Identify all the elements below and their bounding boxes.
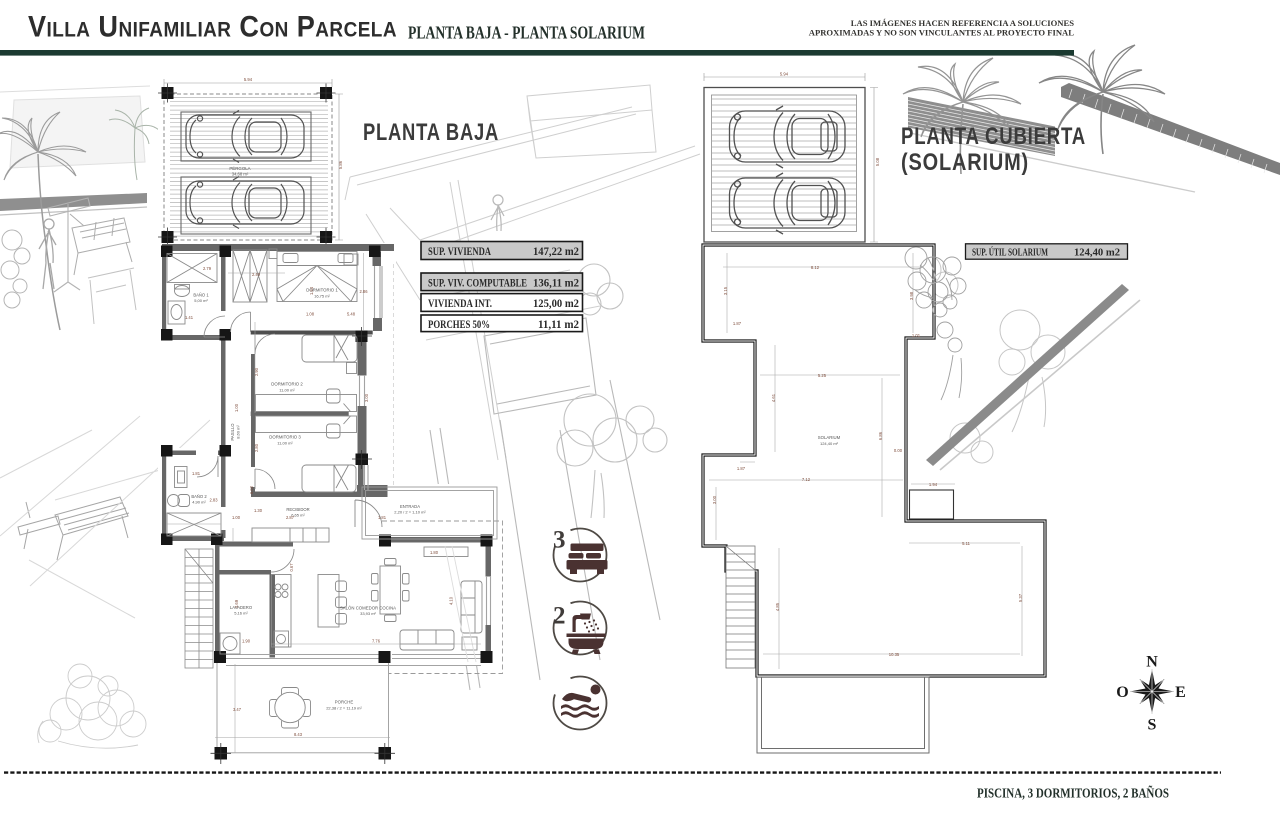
svg-text:136,11 m2: 136,11 m2 [533,278,579,290]
svg-text:1.30: 1.30 [254,508,263,513]
svg-text:1.00: 1.00 [232,515,241,520]
svg-text:SOLARIUM: SOLARIUM [818,435,841,440]
svg-text:2,20 / 2 = 1,10 m²: 2,20 / 2 = 1,10 m² [394,510,426,515]
svg-text:DORMITORIO 3: DORMITORIO 3 [269,435,301,440]
svg-text:PLANTA BAJA - PLANTA SOLARIUM: PLANTA BAJA - PLANTA SOLARIUM [408,23,645,43]
svg-text:147,22 m2: 147,22 m2 [533,246,579,258]
svg-text:1.87: 1.87 [733,321,742,326]
svg-text:1.00: 1.00 [234,403,239,412]
svg-text:ENTRADA: ENTRADA [400,504,420,509]
svg-text:3.47: 3.47 [233,707,242,712]
svg-text:0.00: 0.00 [894,448,903,453]
svg-text:0.67: 0.67 [289,563,294,572]
svg-text:N: N [1146,654,1158,671]
svg-text:PORCHES 50%: PORCHES 50% [428,319,490,331]
svg-text:1.81: 1.81 [192,471,201,476]
svg-text:5.86: 5.86 [338,160,343,169]
svg-text:1.87: 1.87 [737,466,746,471]
svg-text:11,11 m2: 11,11 m2 [538,319,579,331]
svg-text:2.79: 2.79 [203,266,212,271]
svg-text:3.00: 3.00 [712,495,717,504]
svg-text:6.86: 6.86 [878,431,883,440]
svg-text:8.12: 8.12 [811,265,820,270]
svg-text:7.12: 7.12 [802,477,811,482]
svg-text:5.94: 5.94 [244,77,253,82]
svg-text:125,00 m2: 125,00 m2 [533,298,579,310]
svg-text:4.85: 4.85 [775,602,780,611]
svg-text:1.80: 1.80 [430,550,439,555]
svg-text:PASILLO: PASILLO [230,423,235,441]
svg-text:33,93 m²: 33,93 m² [360,611,376,616]
svg-text:7.76: 7.76 [372,639,381,644]
svg-text:5,00 m²: 5,00 m² [194,298,208,303]
svg-text:APROXIMADAS Y NO SON VINCULANT: APROXIMADAS Y NO SON VINCULANTES AL PROY… [809,28,1075,38]
svg-text:PLANTA BAJA: PLANTA BAJA [363,119,499,146]
svg-text:BAÑO 2: BAÑO 2 [191,494,207,499]
svg-text:2: 2 [553,603,566,630]
svg-text:SUP. VIV. COMPUTABLE: SUP. VIV. COMPUTABLE [428,278,527,290]
svg-text:5.48: 5.48 [347,312,356,317]
svg-text:(SOLARIUM): (SOLARIUM) [901,149,1029,176]
svg-text:3: 3 [553,527,566,554]
svg-text:6.02: 6.02 [249,485,254,494]
svg-text:S: S [1148,717,1157,734]
svg-text:2.83: 2.83 [210,498,219,503]
svg-text:34,68 m²: 34,68 m² [232,172,249,177]
svg-text:2.90: 2.90 [254,367,259,376]
svg-text:3.98: 3.98 [909,291,914,300]
svg-text:Villa Unifamiliar Con Parcela: Villa Unifamiliar Con Parcela [28,11,397,44]
svg-text:5,16 m²: 5,16 m² [234,611,248,616]
svg-text:RECIBIDOR: RECIBIDOR [286,507,309,512]
svg-text:PISCINA, 3 DORMITORIOS, 2 BAÑO: PISCINA, 3 DORMITORIOS, 2 BAÑOS [977,784,1169,802]
svg-text:PLANTA CUBIERTA: PLANTA CUBIERTA [901,123,1086,150]
svg-text:5.08: 5.08 [875,157,880,166]
svg-text:LAS IMÁGENES HACEN REFERENCIA: LAS IMÁGENES HACEN REFERENCIA A SOLUCION… [851,18,1074,28]
svg-text:SUP. ÚTIL SOLARIUM: SUP. ÚTIL SOLARIUM [972,247,1048,259]
svg-text:VIVIENDA INT.: VIVIENDA INT. [428,298,492,310]
svg-text:1.94: 1.94 [929,482,938,487]
svg-text:1.84: 1.84 [309,286,314,295]
svg-text:2.69: 2.69 [234,599,239,608]
svg-text:4.10: 4.10 [449,596,454,605]
svg-text:1.41: 1.41 [185,315,194,320]
svg-text:1.08: 1.08 [306,312,315,317]
svg-text:16,75 m²: 16,75 m² [314,294,330,299]
svg-text:2.86: 2.86 [360,289,369,294]
svg-text:22,38 / 2 = 11,19 m²: 22,38 / 2 = 11,19 m² [326,706,362,711]
svg-text:PÉRGOLA: PÉRGOLA [229,166,250,171]
svg-text:5.37: 5.37 [1018,593,1023,602]
svg-text:DORMITORIO 2: DORMITORIO 2 [271,382,303,387]
svg-text:BAÑO 1: BAÑO 1 [193,293,209,298]
svg-text:SALÓN COMEDOR COCINA: SALÓN COMEDOR COCINA [340,606,396,611]
svg-text:5.25: 5.25 [818,373,827,378]
svg-text:1.81: 1.81 [378,515,387,520]
svg-text:8,60 m²: 8,60 m² [236,425,241,439]
svg-text:E: E [1175,684,1186,701]
svg-text:4,90 m²: 4,90 m² [192,500,206,505]
svg-text:5.11: 5.11 [962,541,971,546]
svg-text:O: O [1116,684,1128,701]
svg-text:1.01: 1.01 [912,333,921,338]
svg-text:124,40 m²: 124,40 m² [820,441,839,446]
svg-text:5.94: 5.94 [780,72,789,77]
svg-text:3.00: 3.00 [364,393,369,402]
svg-text:124,40 m2: 124,40 m2 [1074,248,1120,259]
svg-text:8.43: 8.43 [294,732,303,737]
svg-text:11,00 m²: 11,00 m² [279,388,295,393]
svg-text:11,00 m²: 11,00 m² [277,441,293,446]
svg-text:3.15: 3.15 [723,286,728,295]
svg-text:SUP. VIVIENDA: SUP. VIVIENDA [428,246,492,258]
svg-text:2.80: 2.80 [254,443,259,452]
svg-text:1.90: 1.90 [242,639,251,644]
svg-text:2.87: 2.87 [286,515,295,520]
svg-text:PORCHE: PORCHE [335,700,354,705]
svg-text:4.61: 4.61 [771,393,776,402]
svg-text:2.40: 2.40 [252,272,261,277]
svg-text:10.35: 10.35 [889,652,900,657]
